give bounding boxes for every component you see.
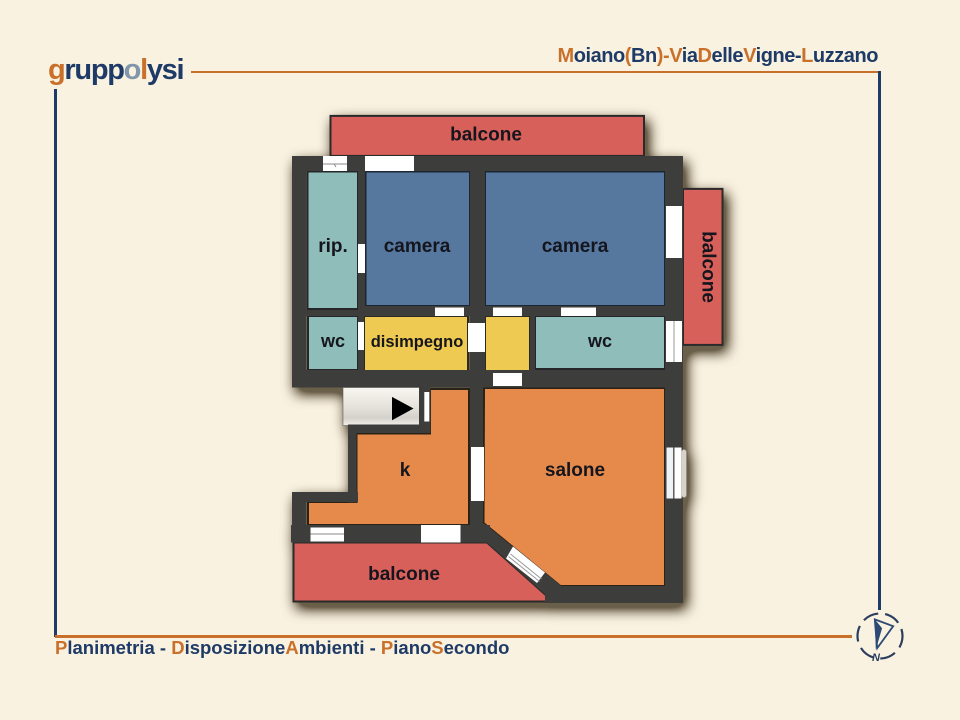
svg-text:balcone: balcone: [450, 125, 522, 146]
svg-text:wc: wc: [320, 331, 345, 351]
svg-text:k: k: [400, 460, 411, 481]
svg-text:balcone: balcone: [698, 231, 719, 303]
svg-text:balcone: balcone: [368, 564, 440, 585]
svg-text:camera: camera: [542, 236, 609, 257]
svg-text:camera: camera: [384, 236, 451, 257]
svg-text:disimpegno: disimpegno: [371, 333, 464, 351]
svg-text:rip.: rip.: [318, 236, 348, 257]
svg-text:salone: salone: [545, 460, 605, 481]
svg-text:wc: wc: [587, 331, 612, 351]
